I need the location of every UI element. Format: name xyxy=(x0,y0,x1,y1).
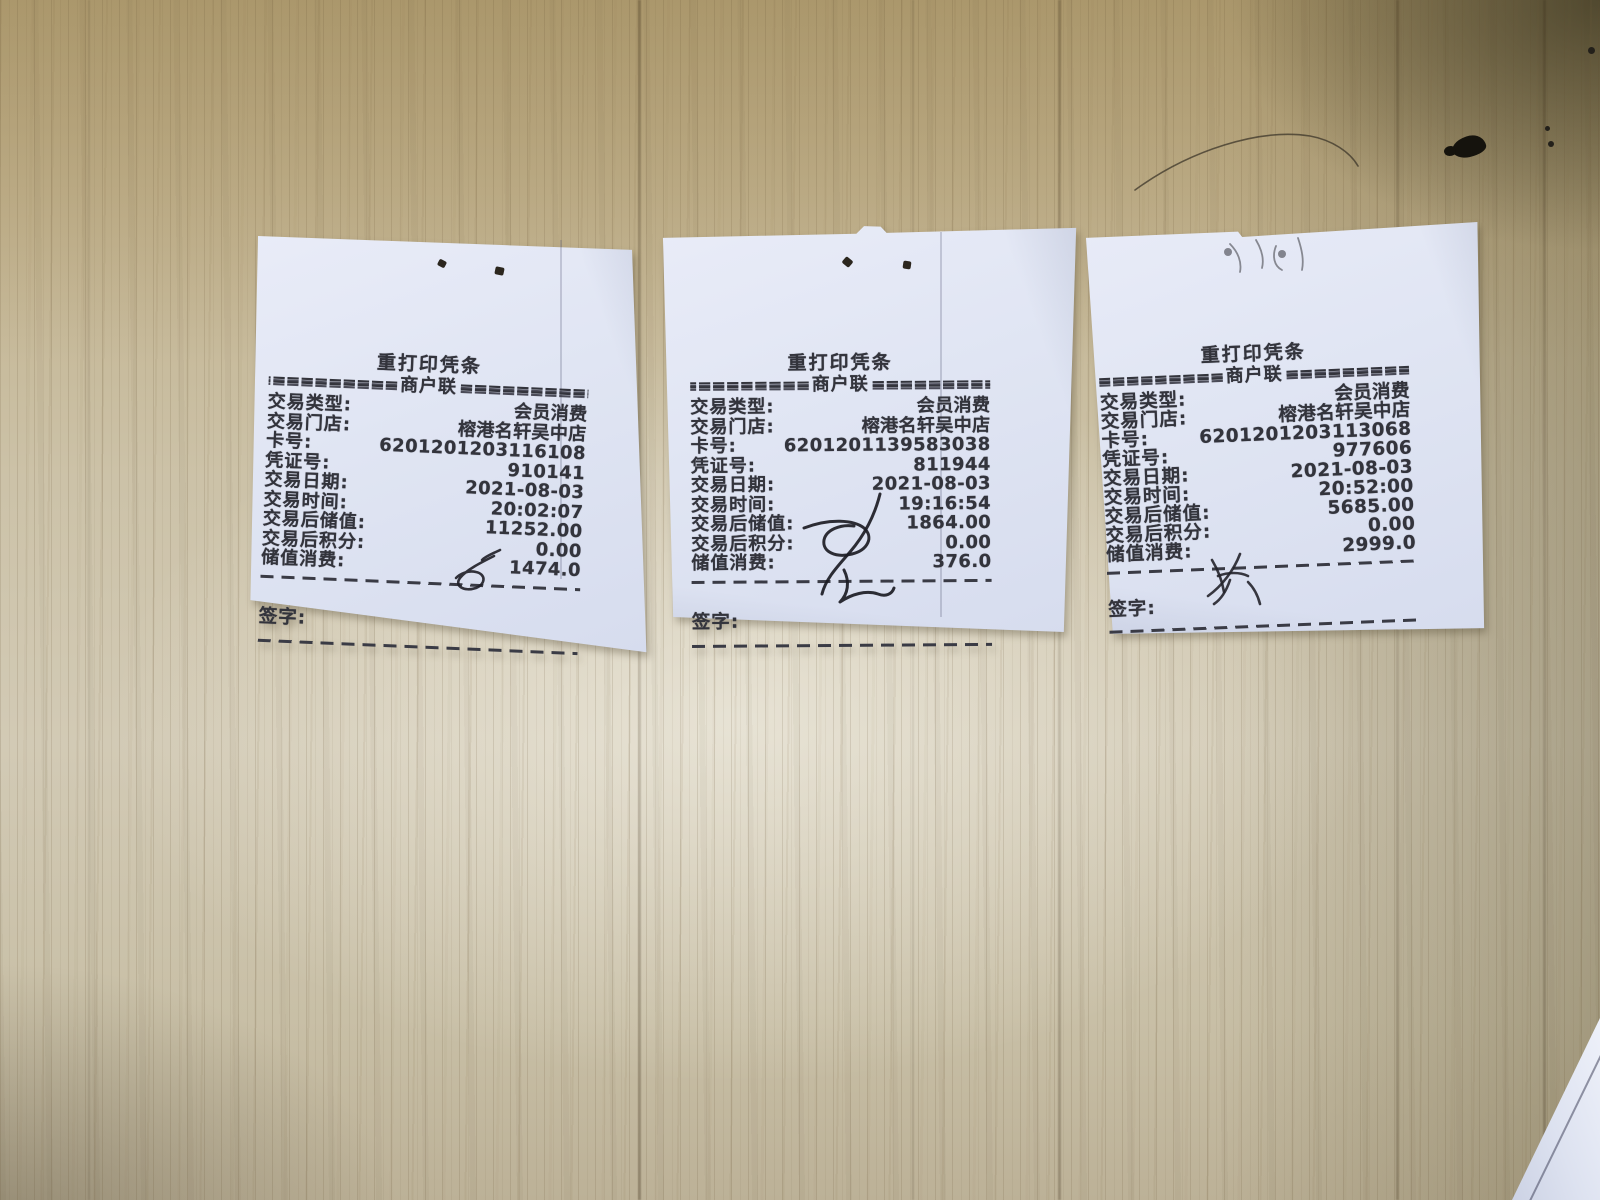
receipt-rows: 交易类型:会员消费交易门店:榕港名轩吴中店卡号:6201201139583038… xyxy=(690,396,991,574)
dashed-line xyxy=(692,578,992,583)
row-value: 2021-08-03 xyxy=(872,474,991,494)
receipt-title: 重打印凭条 xyxy=(690,352,990,375)
sign-row: 签字: xyxy=(258,606,579,639)
ink-blob-small xyxy=(1444,146,1456,156)
row-value: 6201201139583038 xyxy=(784,435,991,456)
row-label: 储值消费: xyxy=(1106,542,1193,564)
stain-dot xyxy=(1545,126,1550,131)
separator-equals: =========== xyxy=(1099,366,1224,392)
row-label: 凭证号: xyxy=(691,456,756,476)
row-value: 2999.0 xyxy=(1342,533,1417,555)
dashed-line xyxy=(258,638,578,654)
sign-label: 签字: xyxy=(1108,598,1156,621)
sign-label: 签字: xyxy=(258,605,306,628)
row-value: 会员消费 xyxy=(917,396,991,416)
row-label: 交易日期: xyxy=(691,475,775,495)
staple-mark xyxy=(494,266,504,276)
photo-of-receipts-on-desk: 重打印凭条 =========== 商户联 =========== 交易类型:会… xyxy=(0,0,1600,1200)
receipt-2: 重打印凭条 =========== 商户联 =========== 交易类型:会… xyxy=(654,222,1080,640)
row-label: 储值消费: xyxy=(261,548,346,571)
copy-separator: =========== 商户联 =========== xyxy=(690,373,990,396)
row-value: 0.00 xyxy=(945,532,991,552)
row-label: 储值消费: xyxy=(691,553,775,573)
stain-dot xyxy=(1548,141,1554,147)
receipt-print: 重打印凭条 =========== 商户联 =========== 交易类型:会… xyxy=(1098,338,1419,634)
separator-equals: =========== xyxy=(871,373,991,395)
copy-label: 商户联 xyxy=(1223,364,1285,387)
row-label: 交易门店: xyxy=(690,417,774,437)
sign-label: 签字: xyxy=(692,611,740,632)
wood-seam xyxy=(1543,0,1546,1200)
row-label: 卡号: xyxy=(266,431,313,452)
row-value: 1864.00 xyxy=(906,513,991,533)
row-label: 交易后储值: xyxy=(691,514,794,534)
row-value: 811944 xyxy=(913,454,991,474)
separator-equals: =========== xyxy=(690,374,810,396)
row-label: 交易类型: xyxy=(690,397,774,417)
receipt-3: 重打印凭条 =========== 商户联 =========== 交易类型:会… xyxy=(1070,200,1490,640)
sign-row: 签字: xyxy=(692,610,992,632)
row-label: 卡号: xyxy=(691,437,737,457)
row-value: 榕港名轩吴中店 xyxy=(862,415,991,435)
receipt-print: 重打印凭条 =========== 商户联 =========== 交易类型:会… xyxy=(258,348,590,655)
row-label: 交易时间: xyxy=(691,495,775,515)
copy-label: 商户联 xyxy=(810,374,871,395)
receipt-1: 重打印凭条 =========== 商户联 =========== 交易类型:会… xyxy=(248,226,648,660)
wood-seam xyxy=(88,0,90,1200)
copy-label: 商户联 xyxy=(398,374,460,398)
row-value: 1474.0 xyxy=(509,558,582,580)
row-value: 19:16:54 xyxy=(898,493,991,513)
receipt-print: 重打印凭条 =========== 商户联 =========== 交易类型:会… xyxy=(690,352,992,648)
row-value: 376.0 xyxy=(932,552,991,572)
separator-equals: =========== xyxy=(459,377,589,403)
receipt-rows: 交易类型:会员消费交易门店:榕港名轩吴中店卡号:6201201203116108… xyxy=(261,392,588,581)
sign-row: 签字: xyxy=(1108,588,1419,620)
staple-mark xyxy=(902,260,911,269)
receipt-row: 储值消费:376.0 xyxy=(691,552,991,574)
row-label: 交易后积分: xyxy=(691,534,794,554)
stain-dot xyxy=(1588,47,1595,54)
receipt-rows: 交易类型:会员消费交易门店:榕港名轩吴中店卡号:6201201203113068… xyxy=(1100,382,1417,565)
row-value: 11252.00 xyxy=(485,518,583,542)
